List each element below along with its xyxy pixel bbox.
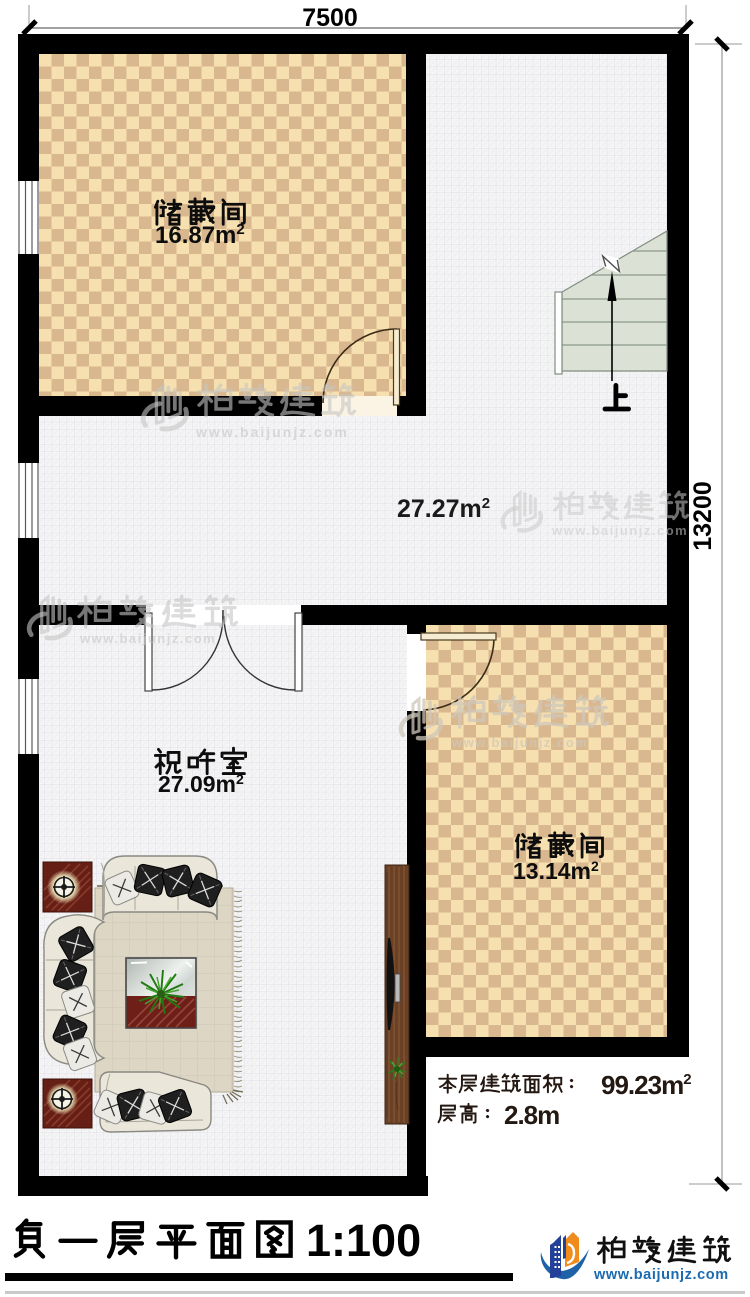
svg-text:99.23m2: 99.23m2 (601, 1070, 691, 1100)
svg-text:www.baijunjz.com: www.baijunjz.com (551, 523, 688, 538)
svg-text:7500: 7500 (302, 4, 358, 32)
svg-text:www.baijunjz.com: www.baijunjz.com (593, 1267, 729, 1283)
svg-text:www.baijunjz.com: www.baijunjz.com (451, 735, 588, 750)
svg-text:1:100: 1:100 (306, 1215, 421, 1266)
svg-text:27.09m2: 27.09m2 (158, 771, 244, 797)
svg-text:www.baijunjz.com: www.baijunjz.com (79, 631, 216, 646)
svg-text:27.27m2: 27.27m2 (397, 495, 490, 523)
svg-text:13.14m2: 13.14m2 (513, 858, 599, 884)
svg-text:2.8m: 2.8m (504, 1100, 559, 1130)
svg-text:www.baijunjz.com: www.baijunjz.com (195, 424, 349, 440)
svg-text:16.87m2: 16.87m2 (155, 221, 245, 249)
svg-text:13200: 13200 (689, 481, 717, 551)
